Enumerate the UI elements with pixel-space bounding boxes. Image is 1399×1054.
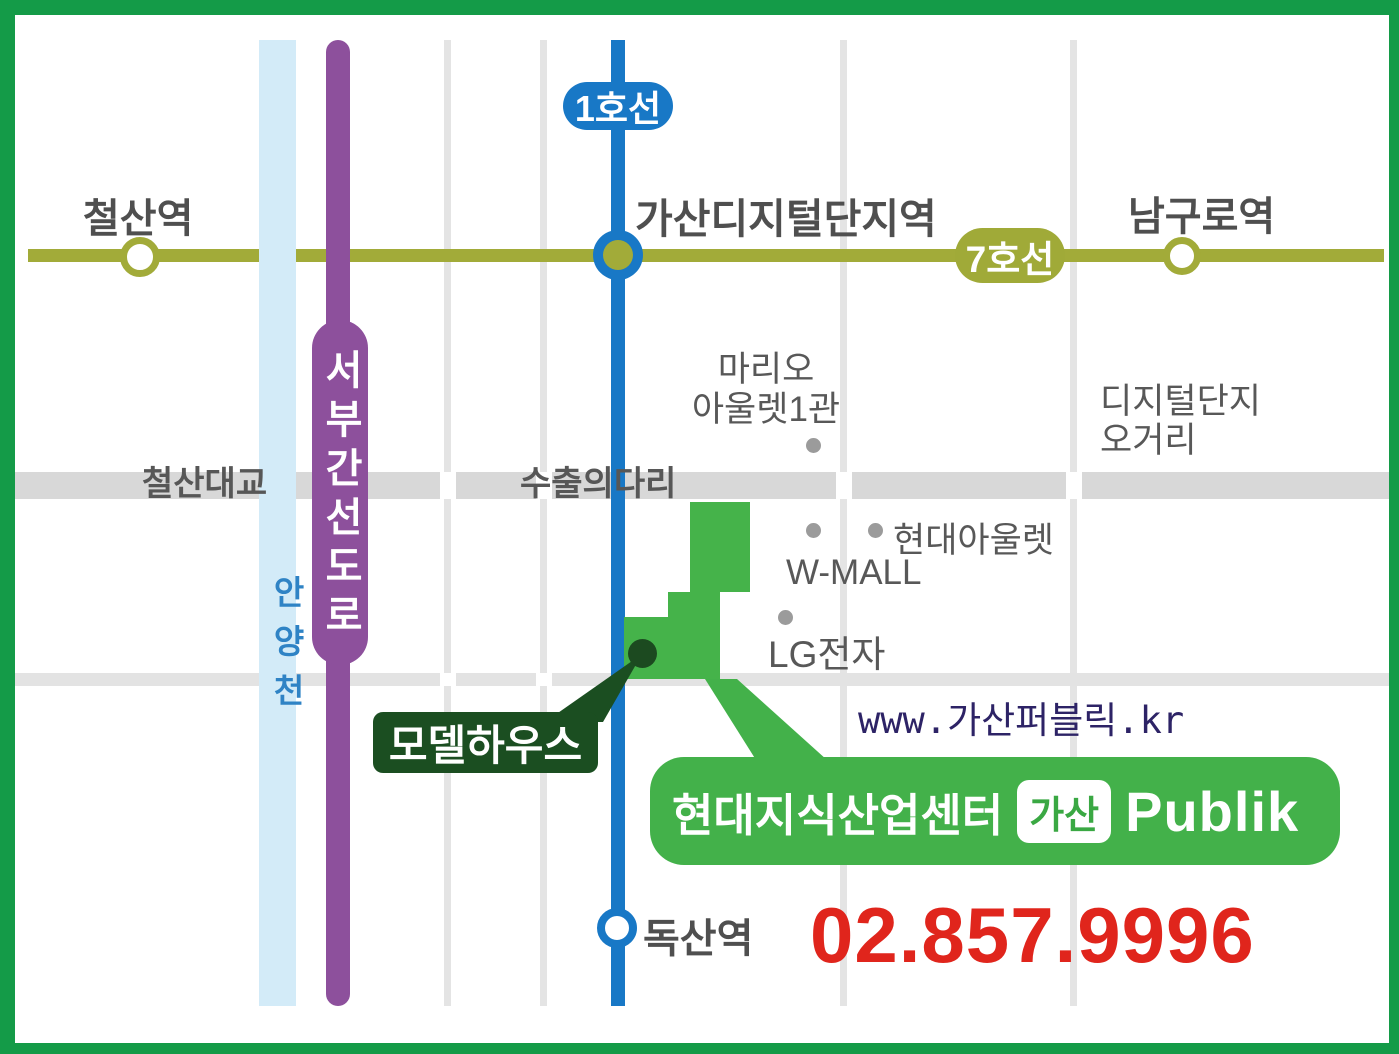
road-gap — [836, 472, 852, 499]
poi-dot-lg — [778, 610, 793, 625]
gasan-digital-station-label: 가산디지털단지역 — [635, 185, 937, 245]
w-mall-label: W-MALL — [786, 553, 922, 593]
location-map: 안양천 서부간선도로 철산대교 수출의다리 1호선 7호선 철산역 가산디지털단… — [0, 0, 1399, 1054]
banner-title: 현대지식산업센터 — [672, 779, 1003, 844]
road-gap — [536, 673, 552, 686]
gasan-interchange-core — [603, 240, 633, 270]
lg-electronics-label: LG전자 — [768, 624, 885, 678]
line7-badge: 7호선 — [955, 228, 1065, 283]
seobu-expressway-label: 서부간선도로 — [311, 349, 369, 643]
mario-outlet-label: 마리오 아울렛1관 — [666, 350, 866, 430]
road-gap — [440, 472, 456, 499]
model-house-callout: 모델하우스 — [373, 712, 598, 773]
mario-outlet-line1: 마리오 — [666, 350, 866, 390]
cheolsan-station-label: 철산역 — [83, 186, 193, 244]
export-bridge-label: 수출의다리 — [520, 468, 676, 500]
cheolsan-bridge-label: 철산대교 — [142, 468, 267, 500]
anyang-stream — [259, 40, 296, 1006]
road-gap — [440, 673, 456, 686]
website-url: www.가산퍼블릭.kr — [858, 700, 1184, 743]
poi-dot-hyundai — [868, 523, 883, 538]
subway-line1-track — [611, 40, 625, 1006]
seobu-expressway-capsule: 서부간선도로 — [312, 320, 368, 665]
banner-gasan-badge: 가산 — [1017, 780, 1111, 843]
digital-complex-line1: 디지털단지 — [1100, 382, 1261, 421]
phone-number: 02.857.9996 — [810, 896, 1255, 974]
poi-dot-mario — [806, 438, 821, 453]
doksan-station-marker — [597, 908, 637, 948]
grid-road-vertical-1 — [444, 40, 451, 1006]
poi-dot-wmall — [806, 523, 821, 538]
digital-complex-line2: 오거리 — [1100, 421, 1261, 460]
doksan-station-label: 독산역 — [643, 906, 753, 964]
digital-complex-label: 디지털단지 오거리 — [1100, 382, 1261, 460]
namguro-station-marker — [1163, 237, 1201, 275]
model-house-marker — [628, 639, 657, 668]
grid-road-vertical-2 — [540, 40, 547, 1006]
river-label: 안양천 — [262, 575, 310, 722]
road-gap — [1066, 472, 1082, 499]
banner-brand: Publik — [1125, 779, 1299, 844]
line1-badge: 1호선 — [563, 82, 673, 130]
mario-outlet-line2: 아울렛1관 — [666, 390, 866, 430]
namguro-station-label: 남구로역 — [1128, 184, 1275, 242]
model-house-label: 모델하우스 — [389, 712, 582, 773]
banner-callout-tail — [705, 679, 827, 760]
center-name-banner: 현대지식산업센터 가산 Publik — [650, 757, 1340, 865]
